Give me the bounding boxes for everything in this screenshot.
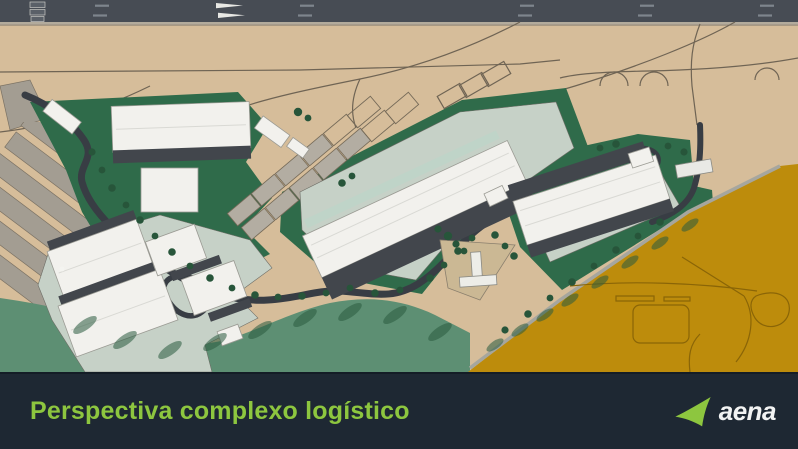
vehicles bbox=[30, 2, 45, 22]
footer-bar: Perspectiva complexo logístico aena bbox=[0, 372, 798, 449]
aena-logo-icon bbox=[673, 395, 713, 429]
highway-strip bbox=[0, 0, 798, 26]
warehouse-small-north bbox=[141, 168, 198, 212]
slide: Perspectiva complexo logístico aena bbox=[0, 0, 798, 449]
site-plan-illustration bbox=[0, 0, 798, 372]
warehouse-north bbox=[111, 102, 251, 164]
aena-logo-text: aena bbox=[719, 396, 776, 427]
slide-title: Perspectiva complexo logístico bbox=[30, 397, 410, 426]
aena-logo: aena bbox=[673, 395, 776, 429]
